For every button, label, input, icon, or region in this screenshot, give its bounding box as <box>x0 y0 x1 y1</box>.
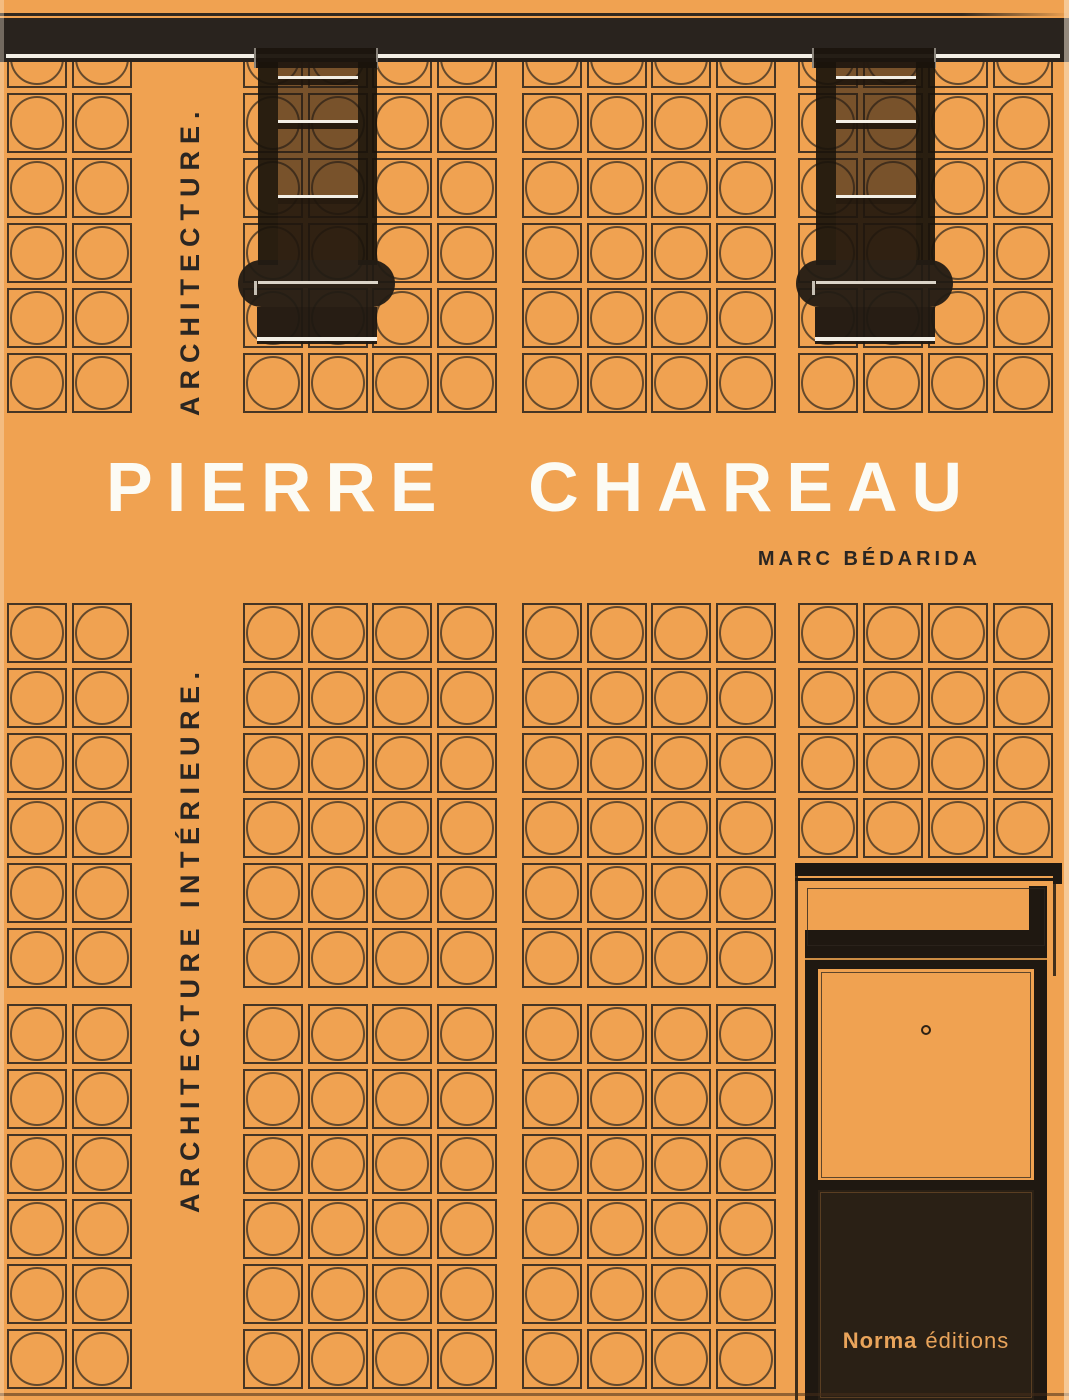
glass-block-circle <box>654 736 708 790</box>
glass-block-tile <box>308 1069 368 1129</box>
glass-block-circle <box>75 1072 129 1126</box>
glass-block-circle <box>311 1072 365 1126</box>
glass-block-circle <box>719 801 773 855</box>
glass-block-circle <box>866 801 920 855</box>
glass-block-circle <box>10 801 64 855</box>
glass-block-tile <box>437 1134 497 1194</box>
glass-block-tile <box>651 223 711 283</box>
glass-block-tile <box>798 353 858 413</box>
glass-block-circle <box>10 1332 64 1386</box>
glass-block-tile <box>587 733 647 793</box>
glass-block-circle <box>75 1332 129 1386</box>
glass-block-circle <box>525 1072 579 1126</box>
glass-block-circle <box>525 801 579 855</box>
glass-block-circle <box>10 356 64 410</box>
glass-block-tile <box>437 93 497 153</box>
glass-block-tile <box>308 1264 368 1324</box>
glass-block-circle <box>75 1202 129 1256</box>
glass-block-circle <box>654 671 708 725</box>
glass-block-circle <box>311 1137 365 1191</box>
glass-block-circle <box>246 801 300 855</box>
glass-block-circle <box>75 1267 129 1321</box>
glass-block-circle <box>719 931 773 985</box>
glass-block-tile <box>993 603 1053 663</box>
glass-block-tile <box>72 1004 132 1064</box>
glass-block-tile <box>522 223 582 283</box>
glass-block-tile <box>243 798 303 858</box>
glass-block-tile <box>651 603 711 663</box>
window-base-highlight <box>257 337 377 341</box>
glass-block-tile <box>651 928 711 988</box>
door-right-step <box>1053 876 1062 884</box>
glass-block-circle <box>440 291 494 345</box>
glass-block-circle <box>801 356 855 410</box>
glass-block-tile <box>372 1134 432 1194</box>
glass-block-tile <box>716 158 776 218</box>
glass-block-tile <box>72 668 132 728</box>
glass-block-tile <box>437 288 497 348</box>
glass-block-circle <box>10 291 64 345</box>
glass-block-circle <box>375 1267 429 1321</box>
glass-block-tile <box>243 603 303 663</box>
glass-block-circle <box>719 1137 773 1191</box>
glass-block-circle <box>590 1007 644 1061</box>
glass-block-circle <box>590 801 644 855</box>
glass-block-tile <box>372 1199 432 1259</box>
door-mid-line <box>805 958 1047 960</box>
glass-block-circle <box>75 356 129 410</box>
glass-block-circle <box>10 96 64 150</box>
glass-block-tile <box>7 1134 67 1194</box>
window-rung <box>836 76 916 85</box>
glass-block-circle <box>440 96 494 150</box>
glass-block-circle <box>719 606 773 660</box>
glass-block-tile <box>7 353 67 413</box>
glass-block-circle <box>996 736 1050 790</box>
glass-block-circle <box>440 1137 494 1191</box>
glass-block-tile <box>72 1199 132 1259</box>
glass-block-tile <box>928 798 988 858</box>
glass-block-circle <box>440 866 494 920</box>
glass-block-circle <box>75 1137 129 1191</box>
glass-block-tile <box>7 1069 67 1129</box>
facade-window-right <box>796 18 953 344</box>
glass-block-circle <box>719 96 773 150</box>
window-rung <box>836 195 916 204</box>
glass-block-circle <box>866 606 920 660</box>
glass-block-tile <box>716 1264 776 1324</box>
glass-block-circle <box>654 161 708 215</box>
glass-block-circle <box>931 671 985 725</box>
glass-block-tile <box>522 1069 582 1129</box>
vertical-label-architecture-interieure: ARCHITECTURE INTÉRIEURE. <box>164 597 216 1213</box>
glass-block-tile <box>716 353 776 413</box>
glass-block-tile <box>72 288 132 348</box>
glass-block-tile <box>587 603 647 663</box>
glass-block-circle <box>375 801 429 855</box>
glass-block-circle <box>801 736 855 790</box>
glass-block-tile <box>72 1329 132 1389</box>
glass-block-circle <box>525 226 579 280</box>
glass-block-tile <box>993 798 1053 858</box>
glass-block-tile <box>716 1199 776 1259</box>
glass-block-circle <box>311 1332 365 1386</box>
glass-block-circle <box>375 1202 429 1256</box>
glass-block-circle <box>10 161 64 215</box>
glass-block-tile <box>587 1004 647 1064</box>
glass-block-tile <box>716 733 776 793</box>
glass-block-tile <box>651 1069 711 1129</box>
glass-block-tile <box>651 158 711 218</box>
glass-block-circle <box>525 356 579 410</box>
glass-block-tile <box>522 603 582 663</box>
glass-block-tile <box>72 733 132 793</box>
glass-block-circle <box>75 736 129 790</box>
glass-block-circle <box>246 606 300 660</box>
glass-block-circle <box>375 1072 429 1126</box>
glass-block-tile <box>437 928 497 988</box>
window-balcony-notch <box>254 281 257 295</box>
glass-block-circle <box>246 1332 300 1386</box>
glass-block-circle <box>246 1202 300 1256</box>
glass-block-tile <box>308 798 368 858</box>
glass-block-circle <box>440 1267 494 1321</box>
glass-block-circle <box>590 866 644 920</box>
glass-block-tile <box>372 603 432 663</box>
glass-block-circle <box>654 1072 708 1126</box>
glass-block-tile <box>7 1329 67 1389</box>
window-rail-right <box>358 62 377 265</box>
glass-block-circle <box>590 1072 644 1126</box>
glass-block-circle <box>996 356 1050 410</box>
glass-block-circle <box>590 736 644 790</box>
glass-block-circle <box>931 801 985 855</box>
glass-block-circle <box>246 1137 300 1191</box>
glass-block-tile <box>651 798 711 858</box>
glass-block-circle <box>246 931 300 985</box>
glass-block-circle <box>590 931 644 985</box>
glass-block-tile <box>7 223 67 283</box>
glass-block-circle <box>590 1137 644 1191</box>
glass-block-tile <box>372 863 432 923</box>
door-bottom-panel <box>818 1190 1034 1400</box>
glass-block-circle <box>931 356 985 410</box>
glass-block-circle <box>996 671 1050 725</box>
glass-block-circle <box>246 866 300 920</box>
window-lower-shade <box>836 204 916 260</box>
glass-block-circle <box>654 801 708 855</box>
glass-block-circle <box>75 226 129 280</box>
glass-block-tile <box>7 928 67 988</box>
facade-bottom-line <box>0 1393 1069 1396</box>
glass-block-circle <box>996 226 1050 280</box>
glass-block-tile <box>522 863 582 923</box>
glass-block-tile <box>651 733 711 793</box>
glass-block-tile <box>437 353 497 413</box>
glass-block-tile <box>7 863 67 923</box>
publisher-suffix: éditions <box>925 1328 1009 1353</box>
glass-block-circle <box>10 1267 64 1321</box>
author-name: MARC BÉDARIDA <box>758 548 981 571</box>
glass-block-circle <box>996 291 1050 345</box>
glass-block-tile <box>243 668 303 728</box>
glass-block-circle <box>866 736 920 790</box>
glass-block-tile <box>522 1199 582 1259</box>
glass-block-circle <box>719 736 773 790</box>
glass-block-circle <box>719 161 773 215</box>
glass-block-tile <box>243 928 303 988</box>
glass-block-tile <box>372 928 432 988</box>
glass-block-circle <box>440 671 494 725</box>
glass-block-tile <box>993 668 1053 728</box>
glass-block-tile <box>308 928 368 988</box>
glass-block-circle <box>440 356 494 410</box>
glass-block-circle <box>801 801 855 855</box>
window-balcony-highlight <box>258 281 378 284</box>
glass-block-circle <box>246 1267 300 1321</box>
window-balcony-notch <box>812 281 815 295</box>
glass-block-circle <box>590 606 644 660</box>
glass-block-tile <box>308 1329 368 1389</box>
glass-block-circle <box>654 1202 708 1256</box>
glass-block-tile <box>522 1004 582 1064</box>
glass-block-tile <box>72 353 132 413</box>
glass-block-tile <box>243 1329 303 1389</box>
glass-block-tile <box>798 668 858 728</box>
glass-block-circle <box>375 1007 429 1061</box>
glass-block-tile <box>798 603 858 663</box>
glass-block-tile <box>798 798 858 858</box>
glass-block-circle <box>525 1007 579 1061</box>
glass-block-tile <box>437 158 497 218</box>
glass-block-tile <box>716 928 776 988</box>
glass-block-tile <box>651 1134 711 1194</box>
glass-block-circle <box>590 1332 644 1386</box>
glass-block-tile <box>437 798 497 858</box>
glass-block-circle <box>75 606 129 660</box>
door-transom-panel <box>805 886 1029 930</box>
glass-block-circle <box>10 931 64 985</box>
glass-block-circle <box>866 671 920 725</box>
glass-block-circle <box>375 1332 429 1386</box>
glass-block-circle <box>440 161 494 215</box>
glass-block-tile <box>587 353 647 413</box>
facade-top-line <box>0 13 1069 16</box>
glass-block-tile <box>522 1264 582 1324</box>
glass-block-circle <box>10 671 64 725</box>
glass-block-circle <box>75 801 129 855</box>
glass-block-tile <box>308 863 368 923</box>
glass-block-circle <box>311 801 365 855</box>
glass-block-circle <box>10 226 64 280</box>
glass-block-circle <box>654 1137 708 1191</box>
glass-block-circle <box>440 801 494 855</box>
glass-block-circle <box>654 96 708 150</box>
glass-block-tile <box>372 798 432 858</box>
door-lintel-line <box>795 878 1062 881</box>
glass-block-circle <box>246 736 300 790</box>
glass-block-tile <box>587 1264 647 1324</box>
glass-block-tile <box>72 1264 132 1324</box>
glass-block-tile <box>522 288 582 348</box>
glass-block-circle <box>440 606 494 660</box>
glass-block-circle <box>10 1007 64 1061</box>
glass-block-circle <box>525 866 579 920</box>
glass-block-circle <box>996 161 1050 215</box>
glass-block-tile <box>716 1134 776 1194</box>
glass-block-tile <box>522 1134 582 1194</box>
glass-block-tile <box>308 1199 368 1259</box>
door-knob <box>921 1025 931 1035</box>
glass-block-circle <box>10 866 64 920</box>
glass-block-tile <box>372 668 432 728</box>
glass-block-tile <box>372 1069 432 1129</box>
glass-block-circle <box>931 736 985 790</box>
glass-block-tile <box>651 1264 711 1324</box>
window-rung <box>278 76 358 85</box>
glass-block-tile <box>7 733 67 793</box>
glass-block-tile <box>372 1264 432 1324</box>
glass-block-circle <box>375 356 429 410</box>
glass-block-circle <box>866 356 920 410</box>
glass-block-tile <box>716 1004 776 1064</box>
glass-block-tile <box>7 93 67 153</box>
glass-block-tile <box>993 223 1053 283</box>
book-title: PIERRE CHAREAU <box>106 452 976 522</box>
glass-block-circle <box>719 356 773 410</box>
glass-block-tile <box>437 668 497 728</box>
glass-block-circle <box>440 931 494 985</box>
glass-block-tile <box>716 668 776 728</box>
window-rail-left <box>816 62 836 265</box>
glass-block-circle <box>10 1072 64 1126</box>
glass-block-tile <box>651 1004 711 1064</box>
glass-block-tile <box>243 1264 303 1324</box>
glass-block-circle <box>311 931 365 985</box>
glass-block-tile <box>716 223 776 283</box>
glass-block-circle <box>246 356 300 410</box>
glass-block-circle <box>654 291 708 345</box>
glass-block-tile <box>993 353 1053 413</box>
glass-block-tile <box>716 798 776 858</box>
glass-block-tile <box>522 733 582 793</box>
window-rung <box>836 120 916 129</box>
glass-block-tile <box>437 603 497 663</box>
glass-block-circle <box>375 1137 429 1191</box>
glass-block-circle <box>719 671 773 725</box>
glass-block-tile <box>651 863 711 923</box>
glass-block-circle <box>311 671 365 725</box>
glass-block-tile <box>522 93 582 153</box>
page-edge-right <box>1064 0 1069 1400</box>
glass-block-tile <box>72 1134 132 1194</box>
glass-block-circle <box>654 356 708 410</box>
vertical-label-architecture: ARCHITECTURE. <box>164 70 216 416</box>
glass-block-circle <box>996 96 1050 150</box>
glass-block-circle <box>246 1007 300 1061</box>
glass-block-tile <box>587 1329 647 1389</box>
glass-block-tile <box>7 1199 67 1259</box>
glass-block-circle <box>10 606 64 660</box>
glass-block-tile <box>243 353 303 413</box>
window-balcony-highlight <box>816 281 936 284</box>
glass-block-circle <box>525 1202 579 1256</box>
glass-block-circle <box>719 226 773 280</box>
glass-block-circle <box>654 1332 708 1386</box>
glass-block-tile <box>928 668 988 728</box>
glass-block-circle <box>375 606 429 660</box>
glass-block-circle <box>311 1007 365 1061</box>
glass-block-circle <box>654 1007 708 1061</box>
glass-block-tile <box>928 733 988 793</box>
glass-block-tile <box>863 668 923 728</box>
glass-block-tile <box>651 353 711 413</box>
glass-block-circle <box>311 606 365 660</box>
glass-block-circle <box>375 671 429 725</box>
glass-block-tile <box>372 353 432 413</box>
glass-block-circle <box>246 671 300 725</box>
glass-block-circle <box>931 606 985 660</box>
glass-block-tile <box>716 603 776 663</box>
glass-block-tile <box>587 1199 647 1259</box>
glass-block-tile <box>993 158 1053 218</box>
glass-block-tile <box>587 93 647 153</box>
glass-block-tile <box>993 733 1053 793</box>
glass-block-circle <box>75 671 129 725</box>
glass-block-circle <box>525 671 579 725</box>
glass-block-tile <box>372 1004 432 1064</box>
glass-block-circle <box>440 736 494 790</box>
glass-block-tile <box>243 863 303 923</box>
door-right-line <box>1053 884 1056 976</box>
glass-block-tile <box>651 668 711 728</box>
window-rung <box>278 195 358 204</box>
glass-block-tile <box>72 158 132 218</box>
glass-block-circle <box>590 291 644 345</box>
glass-block-tile <box>243 1134 303 1194</box>
glass-block-tile <box>7 603 67 663</box>
glass-block-circle <box>590 356 644 410</box>
glass-block-tile <box>651 1329 711 1389</box>
facade-window-left <box>238 18 395 344</box>
glass-block-circle <box>10 1202 64 1256</box>
glass-block-circle <box>590 161 644 215</box>
glass-block-tile <box>522 928 582 988</box>
glass-block-circle <box>590 671 644 725</box>
glass-block-tile <box>243 733 303 793</box>
glass-block-circle <box>525 1332 579 1386</box>
glass-block-tile <box>72 603 132 663</box>
publisher-logo: Normaéditions <box>818 1328 1034 1354</box>
glass-block-circle <box>75 161 129 215</box>
glass-block-tile <box>863 798 923 858</box>
glass-block-tile <box>587 863 647 923</box>
glass-block-tile <box>587 1069 647 1129</box>
page-edge-left <box>0 0 4 1400</box>
door-lintel <box>795 863 1062 876</box>
book-cover: ARCHITECTURE. ARCHITECTURE INTÉRIEURE. P… <box>0 0 1069 1400</box>
glass-block-tile <box>72 863 132 923</box>
glass-block-tile <box>863 353 923 413</box>
glass-block-circle <box>719 1267 773 1321</box>
glass-block-tile <box>437 1069 497 1129</box>
glass-block-tile <box>522 353 582 413</box>
glass-block-tile <box>7 288 67 348</box>
glass-block-tile <box>587 928 647 988</box>
glass-block-tile <box>437 1264 497 1324</box>
glass-block-tile <box>437 1004 497 1064</box>
glass-block-tile <box>651 93 711 153</box>
